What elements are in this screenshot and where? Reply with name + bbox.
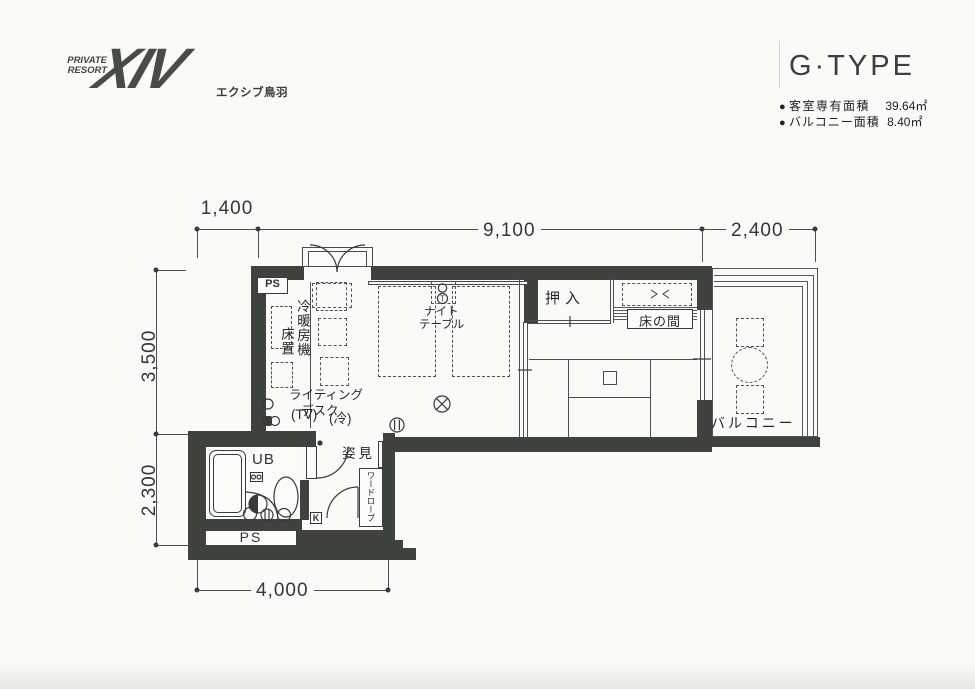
wall-east-lower bbox=[697, 400, 712, 437]
fridge-label: (冷) bbox=[329, 407, 352, 427]
spec-balcony-area-label: バルコニー面積 bbox=[789, 115, 880, 129]
floor-plan-page: PRIVATE RESORT XIV エクシブ鳥羽 G·TYPE ● 客室専有面… bbox=[0, 0, 975, 689]
sliding-door-line-a bbox=[523, 322, 524, 437]
desk-chair-1 bbox=[316, 282, 347, 311]
glass-door-line-b bbox=[704, 310, 705, 400]
wall-south-main bbox=[383, 437, 712, 452]
wall-east-upper bbox=[697, 280, 712, 310]
wall-foot-b bbox=[398, 548, 416, 560]
appliance-icon bbox=[271, 417, 280, 426]
desk-chair-3 bbox=[320, 357, 349, 386]
balcony-table bbox=[731, 347, 768, 383]
wall-light-icon bbox=[390, 418, 404, 432]
desk-chair-2 bbox=[318, 318, 347, 346]
mirror-label: 姿見 bbox=[342, 442, 375, 462]
dim-ext bbox=[158, 434, 188, 435]
dim-label-top-left: 1,400 bbox=[187, 198, 267, 220]
entrance-door-frame-inner bbox=[308, 251, 367, 267]
brand-logo-mark: XIV bbox=[87, 40, 191, 98]
night-table-label-2: テーブル bbox=[419, 316, 464, 332]
tatami-line-v1 bbox=[568, 359, 569, 437]
wall-bottom-band bbox=[188, 545, 390, 560]
ps-bottom-label: PS bbox=[206, 529, 296, 545]
wardrobe-label: ワードローブ bbox=[365, 471, 377, 525]
closet-divider-a bbox=[610, 278, 611, 323]
dim-label-left-lower: 2,300 bbox=[139, 450, 161, 530]
mirror-panel bbox=[378, 441, 383, 468]
bullet-icon: ● bbox=[779, 117, 786, 129]
ceiling-light-icon bbox=[434, 396, 450, 412]
spec-balcony-area-value: 8.40㎡ bbox=[887, 115, 922, 129]
spec-line-room-area: ● 客室専有面積 39.64㎡ bbox=[779, 97, 927, 114]
dim-label-top-center: 9,100 bbox=[478, 220, 541, 242]
bullet-icon: ● bbox=[779, 101, 786, 113]
dim-ext bbox=[158, 270, 186, 271]
dim-label-bottom: 4,000 bbox=[251, 580, 314, 602]
tatami-line-h2 bbox=[568, 397, 650, 398]
closet-label: 押入 bbox=[545, 287, 585, 308]
bathtub-inner bbox=[213, 454, 242, 513]
unit-bath-label: UB bbox=[252, 451, 275, 468]
dim-ext bbox=[702, 231, 703, 262]
spec-room-area-label: 客室専有面積 bbox=[789, 99, 870, 113]
hall-door-arc bbox=[327, 487, 358, 518]
ceiling-light-cross bbox=[436, 398, 447, 409]
spec-room-area-value: 39.64㎡ bbox=[885, 99, 927, 113]
tokonoma-ornament bbox=[622, 283, 692, 306]
balcony-chair-2 bbox=[736, 385, 764, 414]
wall-ub-left bbox=[188, 431, 206, 560]
wall-hall-east bbox=[383, 433, 395, 543]
tatami-line-h1 bbox=[529, 359, 697, 360]
dim-ext bbox=[197, 556, 198, 589]
dim-label-left-upper: 3,500 bbox=[139, 316, 161, 396]
wall-top-main bbox=[371, 266, 712, 280]
room-type-title: G·TYPE bbox=[789, 50, 915, 83]
closet-door-line-b bbox=[527, 323, 611, 324]
dim-ext bbox=[258, 231, 259, 258]
tatami-line-v2 bbox=[650, 359, 651, 437]
ac-floor-label: 床置 bbox=[276, 327, 296, 361]
scan-edge-shadow bbox=[0, 663, 975, 689]
tv-label: (TV) bbox=[291, 407, 317, 422]
door-hinge-dot bbox=[317, 440, 322, 445]
ub-door-leaf bbox=[306, 446, 317, 479]
tokonoma-label: 床の間 bbox=[628, 311, 692, 330]
balcony-label: バルコニー bbox=[711, 413, 796, 433]
ps-top-label: PS bbox=[258, 278, 287, 290]
dim-ext bbox=[815, 231, 816, 262]
paper-holder bbox=[250, 472, 263, 482]
wall-hall-bottom bbox=[296, 530, 390, 545]
dim-ext bbox=[197, 231, 198, 258]
closet-door-line-a bbox=[527, 320, 611, 321]
header-divider-line bbox=[779, 41, 780, 88]
brand-resort-name: エクシブ鳥羽 bbox=[216, 84, 288, 100]
k-switch-label: K bbox=[311, 513, 321, 523]
glass-door-line-a bbox=[700, 310, 701, 400]
wall-ub-top bbox=[188, 431, 316, 447]
wall-ub-east-lower bbox=[300, 480, 309, 520]
spec-line-balcony-area: ● バルコニー面積 8.40㎡ bbox=[779, 113, 922, 130]
wall-balcony-bottom bbox=[712, 437, 820, 447]
night-table bbox=[431, 281, 456, 304]
dim-label-top-right: 2,400 bbox=[726, 220, 789, 242]
dim-ext bbox=[388, 558, 389, 589]
hearth-square bbox=[603, 371, 617, 385]
balcony-chair-1 bbox=[736, 318, 764, 347]
ceiling-light-cross bbox=[436, 398, 447, 409]
sliding-door-line-b bbox=[527, 322, 528, 437]
partition-face-line bbox=[519, 278, 520, 437]
